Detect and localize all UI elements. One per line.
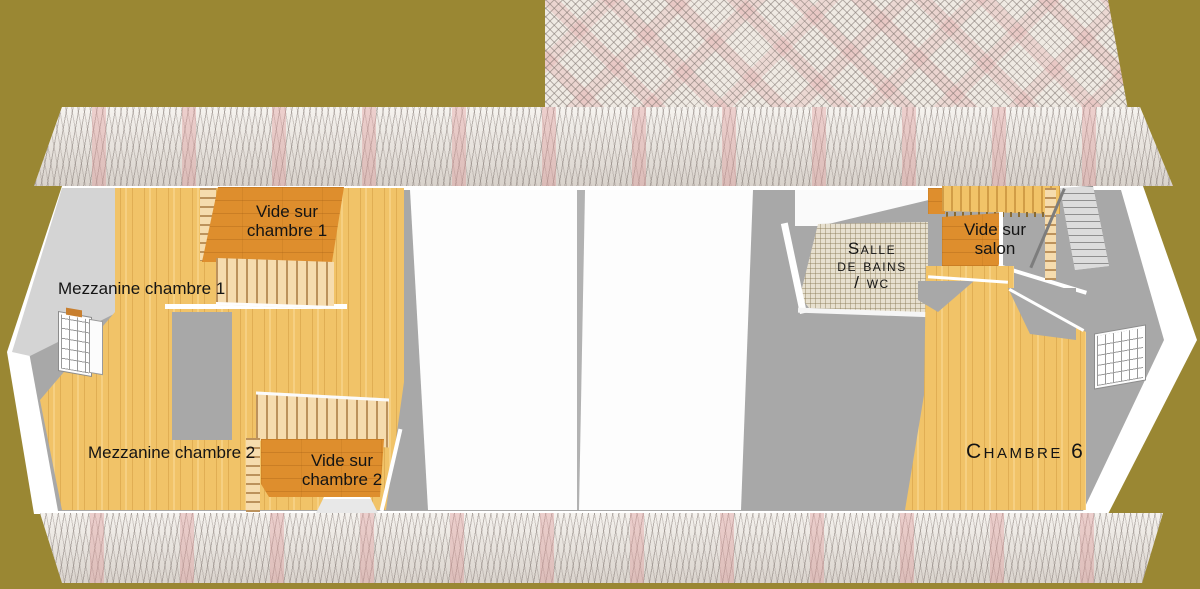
label-salle-de-bains: Salle de bains / wc [810,240,934,291]
roof-upper-slope[interactable] [545,0,1128,110]
label-mezzanine-chambre-1: Mezzanine chambre 1 [58,279,225,298]
railing-vide1-front[interactable] [216,258,334,309]
roof-eave-bottom[interactable] [28,510,1168,586]
landing-step[interactable] [316,497,378,515]
roof-eave-top[interactable] [30,107,1175,186]
label-chambre-6: Chambre 6 [966,441,1085,462]
railing-salon-top[interactable] [942,186,1060,214]
window-left-door-panel[interactable] [90,320,102,374]
corridor-gray[interactable] [172,312,232,440]
window-right[interactable] [1097,328,1143,386]
floorplan-canvas: Vide sur chambre 1 Mezzanine chambre 1 M… [0,0,1200,589]
label-vide-chambre-2: Vide sur chambre 2 [281,451,403,489]
label-vide-chambre-1: Vide sur chambre 1 [225,202,349,240]
window-left[interactable] [61,315,89,374]
label-mezzanine-chambre-2: Mezzanine chambre 2 [88,443,255,462]
label-vide-salon: Vide sur salon [950,220,1040,258]
